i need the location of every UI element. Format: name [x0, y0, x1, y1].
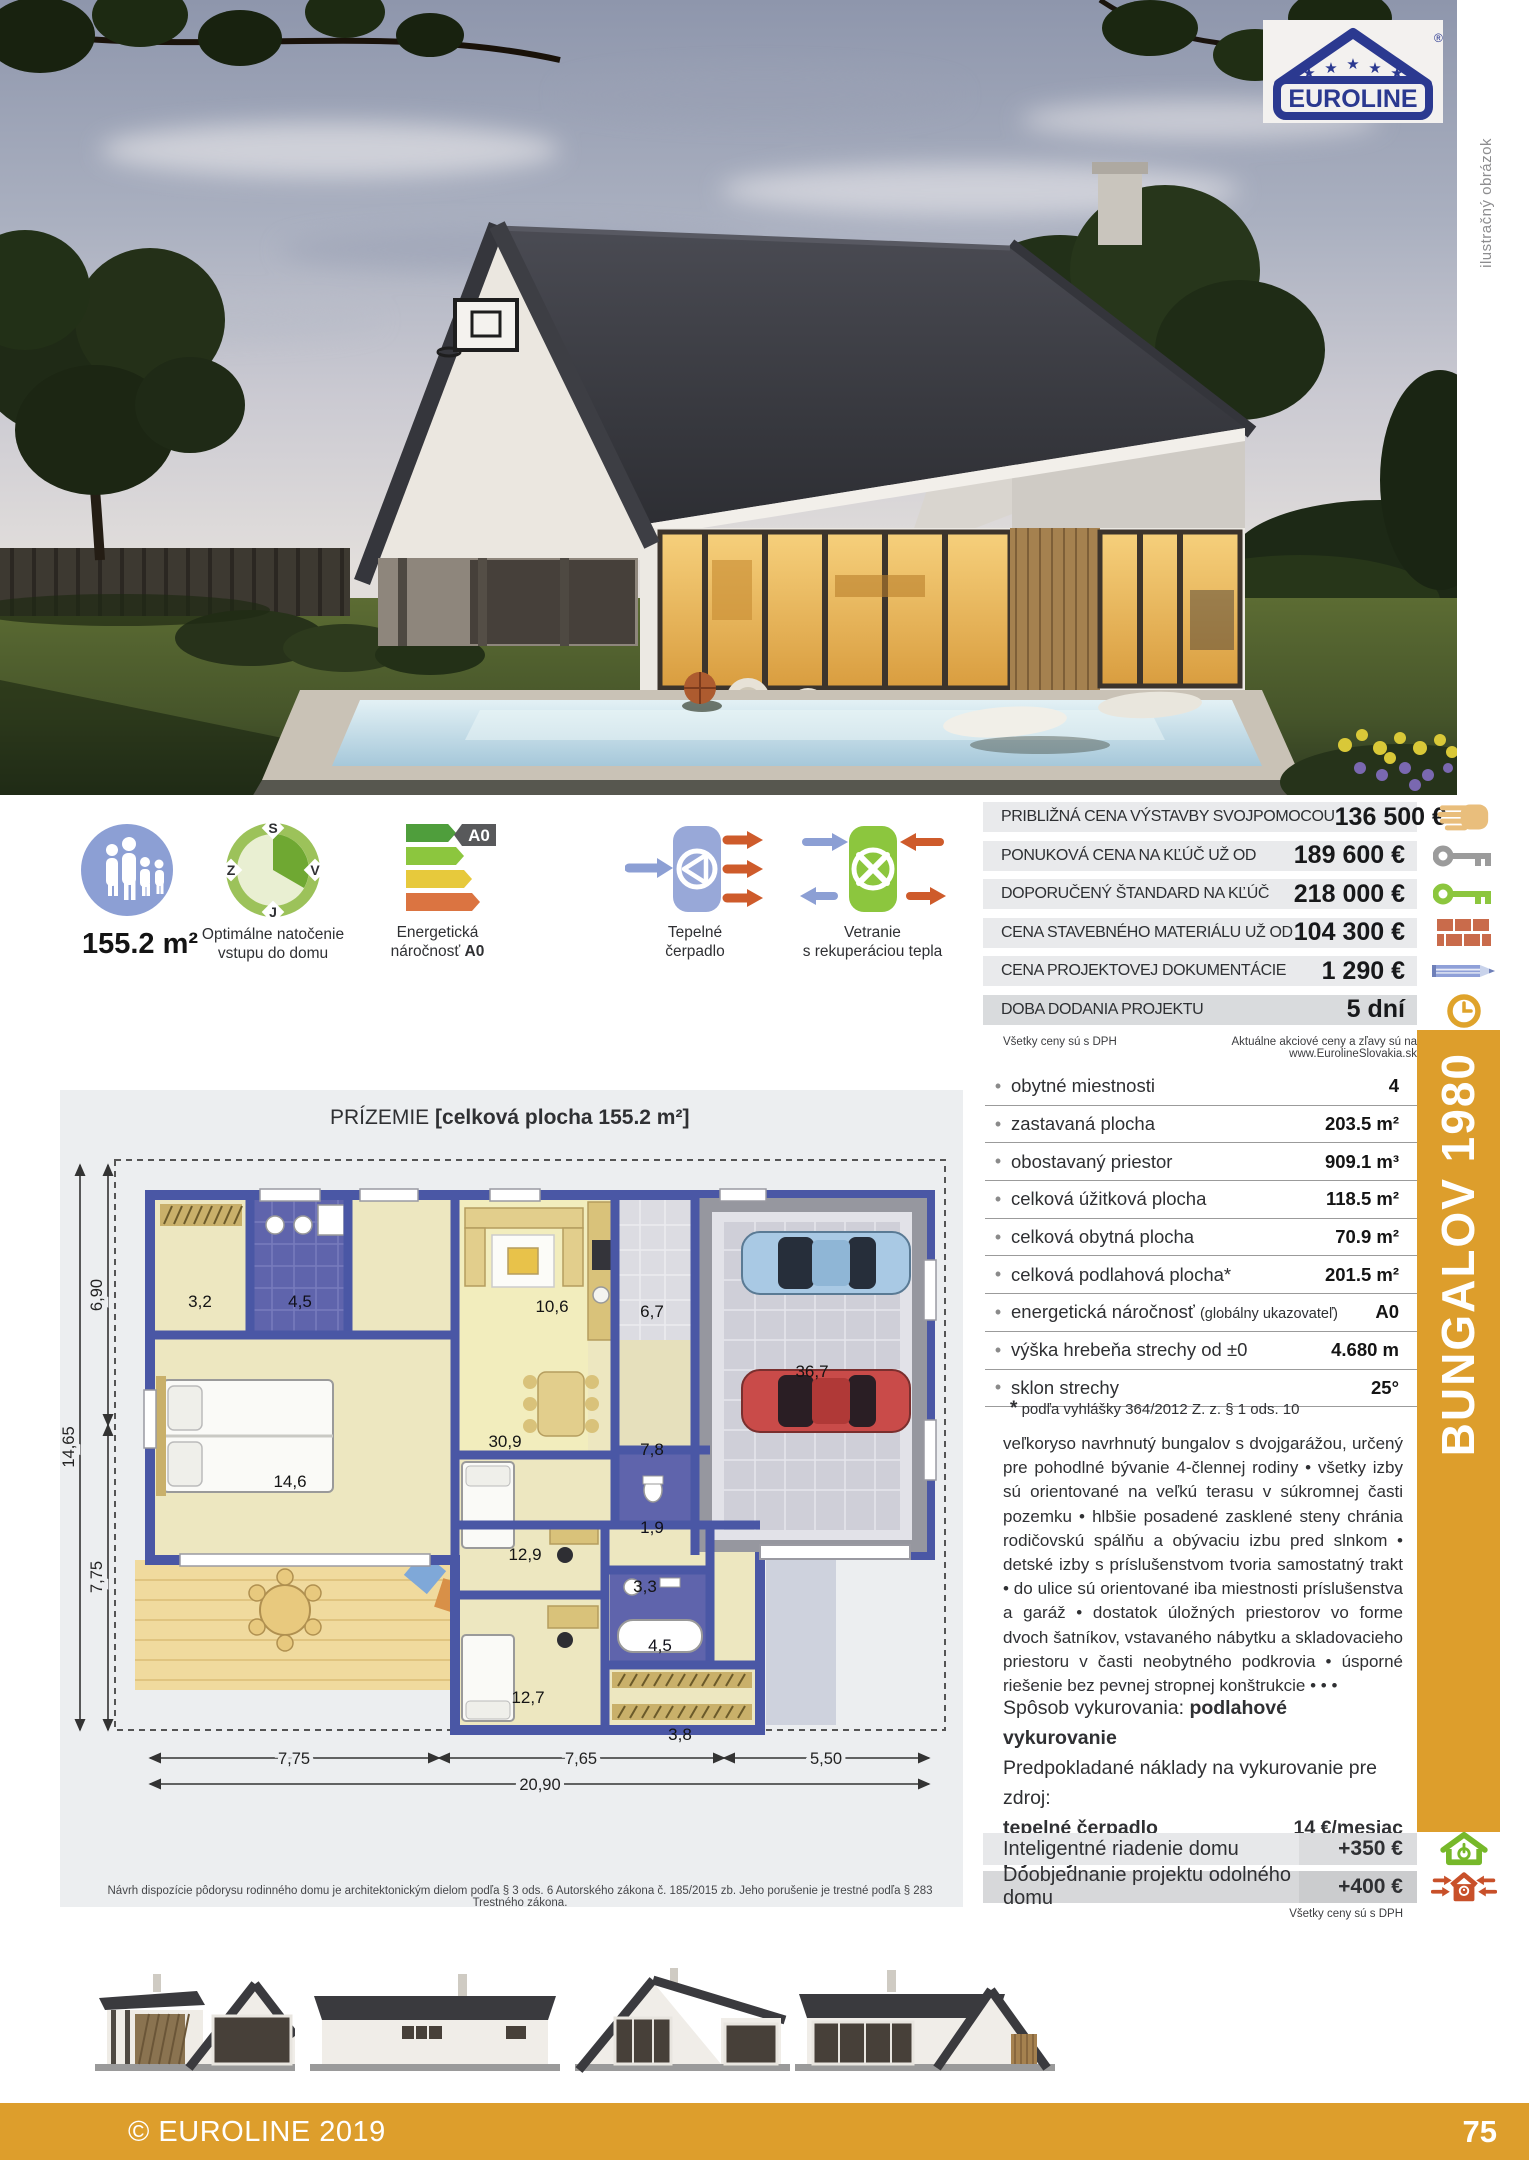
- price-value: 189 600 €: [1294, 841, 1417, 870]
- room-area-label: 4,5: [648, 1636, 672, 1656]
- spec-row: • obytné miestnosti 4: [985, 1068, 1417, 1106]
- price-value: 218 000 €: [1294, 880, 1417, 909]
- key-green-icon: [1428, 879, 1500, 909]
- spec-label: obostavaný priestor: [1011, 1151, 1325, 1173]
- room-area-label: 30,9: [488, 1432, 521, 1452]
- ventilation-label-1: Vetranie: [844, 924, 901, 941]
- model-banner: BUNGALOV 1980: [1417, 1030, 1500, 1832]
- feature-ventilation: Vetranie s rekuperáciou tepla: [775, 822, 970, 961]
- addon-label: Doobjednanie projektu odolného domu: [983, 1871, 1299, 1903]
- addon-value: +350 €: [1299, 1833, 1417, 1865]
- room-area-label: 10,6: [535, 1297, 568, 1317]
- spec-value: 909.1 m³: [1325, 1151, 1417, 1173]
- illustration-note: ilustračný obrázok: [1478, 138, 1495, 268]
- logo-text: EUROLINE: [1288, 85, 1417, 113]
- spec-label: sklon strechy: [1011, 1377, 1371, 1399]
- compass-s: J: [269, 904, 277, 920]
- heatpump-label-1: Tepelné: [668, 924, 722, 941]
- hand-icon: [1428, 802, 1500, 832]
- vat-note: Všetky ceny sú s DPH: [1003, 1036, 1117, 1048]
- price-label: DOBA DODANIA PROJEKTU: [983, 1001, 1347, 1019]
- spec-value: 118.5 m²: [1326, 1188, 1417, 1210]
- spec-row: • energetická náročnosť (globálny ukazov…: [985, 1294, 1417, 1332]
- price-label: DOPORUČENÝ ŠTANDARD NA KĽÚČ: [983, 885, 1294, 903]
- room-area-label: 14,6: [273, 1472, 306, 1492]
- bullet-icon: •: [985, 1076, 1011, 1097]
- price-row: CENA STAVEBNÉHO MATERIÁLU UŽ OD 104 300 …: [983, 918, 1417, 948]
- page-number: 75: [1463, 2114, 1497, 2150]
- spec-row: • výška hrebeňa strechy od ±0 4.680 m: [985, 1332, 1417, 1370]
- svg-text:7,75: 7,75: [278, 1750, 310, 1768]
- spec-value: 25°: [1371, 1377, 1417, 1399]
- compass-e: V: [310, 862, 320, 878]
- family-icon: [79, 820, 175, 920]
- house-photo-illustration: [0, 0, 1457, 795]
- svg-text:★: ★: [1368, 60, 1381, 77]
- spec-label: celková obytná plocha: [1011, 1226, 1335, 1248]
- registered-mark: ®: [1434, 31, 1443, 45]
- svg-text:6,90: 6,90: [88, 1279, 106, 1311]
- svg-text:★: ★: [1324, 60, 1337, 77]
- room-area-label: 12,7: [511, 1688, 544, 1708]
- price-row: PRIBLIŽNÁ CENA VÝSTAVBY SVOJPOMOCOU 136 …: [983, 802, 1417, 832]
- floorplan-drawing: 14,65 6,90 7,75 7,75 7,65 5,50 20,90: [60, 1130, 963, 1870]
- heating-method: Spôsob vykurovania: podlahové vykurovani…: [1003, 1693, 1403, 1753]
- price-label: CENA PROJEKTOVEJ DOKUMENTÁCIE: [983, 962, 1322, 980]
- addon-label: Inteligentné riadenie domu: [983, 1833, 1299, 1865]
- heat-pump-icon: [625, 822, 765, 918]
- description-text: veľkoryso navrhnutý bungalov s dvojgaráž…: [1003, 1432, 1403, 1698]
- bullet-icon: •: [985, 1151, 1011, 1172]
- room-area-label: 4,5: [288, 1292, 312, 1312]
- catalog-page: ★★★ ★★ EUROLINE ® ilustračný obrázok: [0, 0, 1529, 2160]
- orientation-label-2: vstupu do domu: [218, 945, 328, 962]
- spec-row: • celková obytná plocha 70.9 m²: [985, 1219, 1417, 1257]
- dining-table: [523, 1372, 599, 1436]
- addon-row: Inteligentné riadenie domu +350 €: [983, 1833, 1417, 1865]
- model-name: BUNGALOV 1980: [1431, 1052, 1487, 1456]
- price-label: PRIBLIŽNÁ CENA VÝSTAVBY SVOJPOMOCOU: [983, 808, 1335, 826]
- bullet-icon: •: [985, 1377, 1011, 1398]
- resilient-home-icon: [1428, 1870, 1500, 1904]
- wood-slat-panel: [1010, 528, 1100, 690]
- spec-value: 70.9 m²: [1335, 1226, 1417, 1248]
- ventilation-icon: [798, 822, 948, 918]
- specs-footnote: * podľa vyhlášky 364/2012 Z. z. § 1 ods.…: [1010, 1398, 1299, 1420]
- price-label: CENA STAVEBNÉHO MATERIÁLU UŽ OD: [983, 924, 1294, 942]
- terrace-table: [260, 1585, 310, 1635]
- elevation-rear-left: [575, 1958, 790, 2078]
- page-footer: © EUROLINE 2019 75: [0, 2103, 1529, 2160]
- price-value: 5 dní: [1347, 995, 1417, 1024]
- specs-table: • obytné miestnosti 4 • zastavaná plocha…: [985, 1068, 1417, 1407]
- spec-label: energetická náročnosť (globálny ukazovat…: [1011, 1301, 1375, 1323]
- floorplan-title: PRÍZEMIE [celková plocha 155.2 m²]: [330, 1106, 689, 1130]
- euroline-logo-icon: ★★★ ★★ EUROLINE ®: [1263, 20, 1443, 123]
- spec-value: 4: [1389, 1075, 1417, 1097]
- key-gray-icon: [1428, 841, 1500, 871]
- spec-row: • zastavaná plocha 203.5 m²: [985, 1106, 1417, 1144]
- spec-value: 201.5 m²: [1325, 1264, 1417, 1286]
- spec-label: celková podlahová plocha*: [1011, 1264, 1325, 1286]
- elevation-rear: [795, 1958, 1055, 2078]
- elevation-side: [310, 1958, 560, 2078]
- copyright: © EUROLINE 2019: [128, 2116, 386, 2149]
- svg-text:20,90: 20,90: [519, 1776, 560, 1794]
- spec-value: 4.680 m: [1331, 1339, 1417, 1361]
- price-label: PONUKOVÁ CENA NA KĽÚČ UŽ OD: [983, 847, 1294, 865]
- orientation-label-1: Optimálne natočenie: [202, 926, 344, 943]
- addon-value: +400 €: [1299, 1871, 1417, 1903]
- smart-home-icon: [1428, 1832, 1500, 1866]
- promo-note: Aktuálne akciové ceny a zľavy sú na www.…: [1130, 1036, 1417, 1060]
- terrace: [135, 1552, 490, 1690]
- svg-text:★: ★: [1346, 56, 1359, 73]
- room-area-label: 3,2: [188, 1292, 212, 1312]
- feature-orientation: S J V Z Optimálne natočenie vstupu do do…: [188, 820, 358, 963]
- garage-door: [760, 1545, 910, 1559]
- spec-row: • obostavaný priestor 909.1 m³: [985, 1143, 1417, 1181]
- spec-row: • celková podlahová plocha* 201.5 m²: [985, 1256, 1417, 1294]
- room-area-label: 1,9: [640, 1518, 664, 1538]
- price-row-delivery: DOBA DODANIA PROJEKTU 5 dní: [983, 995, 1417, 1025]
- hall: [615, 1200, 695, 1450]
- heatpump-label-2: čerpadlo: [665, 943, 724, 960]
- euroline-logo: ★★★ ★★ EUROLINE ®: [1263, 20, 1443, 123]
- energy-label-2: náročnosť: [391, 943, 465, 960]
- chimney: [1098, 170, 1142, 245]
- feature-energy: A0 Energetická náročnosť A0: [360, 822, 515, 961]
- room-area-label: 12,9: [508, 1545, 541, 1565]
- feature-area: [52, 820, 202, 925]
- legal-note: Návrh dispozície pôdorysu rodinného domu…: [105, 1885, 935, 1909]
- compass-w: Z: [227, 862, 236, 878]
- price-row: DOPORUČENÝ ŠTANDARD NA KĽÚČ 218 000 €: [983, 879, 1417, 909]
- spec-label: obytné miestnosti: [1011, 1075, 1389, 1097]
- price-row: PONUKOVÁ CENA NA KĽÚČ UŽ OD 189 600 €: [983, 841, 1417, 871]
- feature-heatpump: Tepelné čerpadlo: [615, 822, 775, 961]
- addons-vat-note: Všetky ceny sú s DPH: [1103, 1908, 1403, 1920]
- footnote-star: *: [1010, 1398, 1017, 1419]
- spec-label: celková úžitková plocha: [1011, 1188, 1326, 1210]
- house-photo: [0, 0, 1457, 795]
- spec-row: • celková úžitková plocha 118.5 m²: [985, 1181, 1417, 1219]
- room-area-label: 7,8: [640, 1440, 664, 1460]
- glass-wall: [660, 532, 1010, 688]
- spec-value: A0: [1375, 1301, 1417, 1323]
- clock-icon: [1428, 996, 1500, 1026]
- bullet-icon: •: [985, 1264, 1011, 1285]
- price-value: 104 300 €: [1294, 918, 1417, 947]
- energy-label-icon: A0: [378, 822, 498, 918]
- spec-label: výška hrebeňa strechy od ±0: [1011, 1339, 1331, 1361]
- outdoor-paving: [766, 1560, 836, 1725]
- svg-text:7,75: 7,75: [88, 1561, 106, 1593]
- ventilation-label-2: s rekuperáciou tepla: [803, 943, 943, 960]
- elevation-front: [95, 1958, 295, 2078]
- compass-n: S: [268, 820, 277, 836]
- price-value: 1 290 €: [1322, 957, 1417, 986]
- energy-label-1: Energetická: [397, 924, 479, 941]
- heating-intro: Predpokladané náklady na vykurovanie pre…: [1003, 1753, 1403, 1813]
- bullet-icon: •: [985, 1227, 1011, 1248]
- room-area-label: 36,7: [795, 1362, 828, 1382]
- price-row: CENA PROJEKTOVEJ DOKUMENTÁCIE 1 290 €: [983, 956, 1417, 986]
- room-area-label: 3,8: [668, 1725, 692, 1745]
- car-blue: [742, 1232, 910, 1294]
- glass-wall-2: [1100, 532, 1240, 686]
- svg-text:5,50: 5,50: [810, 1750, 842, 1768]
- floorplan-panel: PRÍZEMIE [celková plocha 155.2 m²]: [60, 1090, 963, 1907]
- house: [362, 162, 1252, 693]
- bricks-icon: [1428, 918, 1500, 948]
- energy-class: A0: [465, 943, 485, 960]
- energy-badge: A0: [468, 826, 490, 845]
- spec-value: 203.5 m²: [1325, 1113, 1417, 1135]
- pencil-icon: [1428, 956, 1500, 986]
- bullet-icon: •: [985, 1340, 1011, 1361]
- bullet-icon: •: [985, 1114, 1011, 1135]
- pool: [252, 689, 1312, 795]
- room-area-label: 3,3: [633, 1577, 657, 1597]
- addon-row: Doobjednanie projektu odolného domu +400…: [983, 1871, 1417, 1903]
- bullet-icon: •: [985, 1189, 1011, 1210]
- svg-text:14,65: 14,65: [60, 1426, 78, 1467]
- room-area-label: 6,7: [640, 1302, 664, 1322]
- compass-icon: S J V Z: [223, 820, 323, 920]
- svg-text:7,65: 7,65: [565, 1750, 597, 1768]
- spec-label: zastavaná plocha: [1011, 1113, 1325, 1135]
- bullet-icon: •: [985, 1302, 1011, 1323]
